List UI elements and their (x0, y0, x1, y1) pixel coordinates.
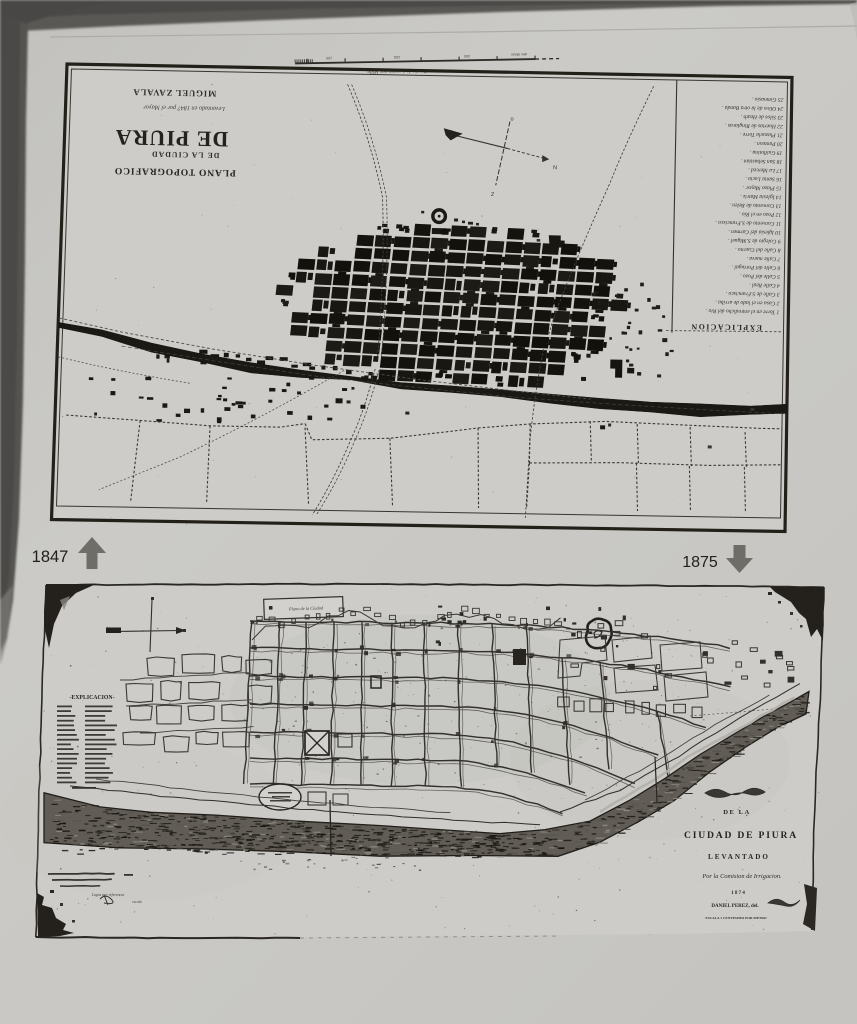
svg-text:11 Convento de S.Francisco .: 11 Convento de S.Francisco . (715, 219, 781, 226)
svg-text:25 Gimnasio .: 25 Gimnasio . (752, 96, 784, 103)
svg-text:13 Convento de Belen .: 13 Convento de Belen . (729, 202, 781, 209)
svg-text:5 Calle del Pozo .: 5 Calle del Pozo . (740, 273, 780, 280)
svg-text:CIUDAD DE PIURA: CIUDAD DE PIURA (684, 830, 798, 841)
svg-text:des Miras: des Miras (511, 52, 527, 56)
svg-text:23 Silos de Heath .: 23 Silos de Heath . (741, 113, 784, 120)
svg-text:16 Santa Lucia .: 16 Santa Lucia . (745, 175, 782, 182)
svg-text:2 Casa en el lado de arriba .: 2 Casa en el lado de arriba . (715, 299, 779, 306)
svg-text:10 Iglesia del Carmen .: 10 Iglesia del Carmen . (728, 228, 781, 235)
svg-text:N: N (553, 163, 557, 169)
svg-text:21 Plazuela Torre .: 21 Plazuela Torre . (740, 131, 783, 138)
svg-text:100: 100 (326, 56, 332, 60)
svg-text:14 Iglesia Matriz .: 14 Iglesia Matriz . (740, 193, 781, 200)
svg-text:1 8 7 4: 1 8 7 4 (731, 891, 745, 896)
svg-text:17 La Merced .: 17 La Merced . (748, 166, 782, 173)
svg-text:DE PIURA: DE PIURA (114, 125, 228, 152)
svg-text:1875: 1875 (682, 554, 718, 571)
svg-text:15 Plaza Mayor .: 15 Plaza Mayor . (743, 184, 782, 191)
svg-text:300: 300 (464, 54, 470, 58)
svg-text:Por la Comision de Irrigacion.: Por la Comision de Irrigacion. (701, 873, 782, 880)
svg-text:7 Calle nueva .: 7 Calle nueva . (746, 255, 780, 262)
svg-text:3 Calle de S.Francisco .: 3 Calle de S.Francisco . (726, 290, 781, 297)
svg-text:19 Guillotina .: 19 Guillotina . (750, 149, 783, 156)
svg-text:1847: 1847 (32, 548, 69, 566)
svg-text:MIGUEL ZAVALA: MIGUEL ZAVALA (133, 87, 217, 99)
svg-text:24 Olivo de la otra Banda .: 24 Olivo de la otra Banda . (722, 104, 783, 111)
svg-text:-EXPLICACION-: -EXPLICACION- (69, 695, 114, 701)
svg-text:9 Colegio de S.Miguel .: 9 Colegio de S.Miguel . (728, 237, 781, 244)
svg-text:escala: escala (132, 900, 142, 904)
svg-text:o: o (510, 116, 513, 122)
svg-text:PLANO TOPOGRAFICO: PLANO TOPOGRAFICO (114, 165, 236, 178)
svg-text:4 Calle Real .: 4 Calle Real . (749, 282, 780, 289)
svg-text:20 Panteon .: 20 Panteon . (754, 140, 783, 147)
svg-text:6 Calle del Portugal .: 6 Calle del Portugal . (732, 264, 781, 271)
svg-text:DE LA CIUDAD: DE LA CIUDAD (151, 150, 219, 160)
svg-text:22 Huertas de Ringlaras .: 22 Huertas de Ringlaras . (725, 122, 783, 129)
svg-text:18 San Sebastian .: 18 San Sebastian . (741, 158, 782, 165)
svg-text:8 Calle del Cuerno .: 8 Calle del Cuerno . (735, 246, 781, 253)
svg-text:ESCALA 1 CENTESIMO POR METRO: ESCALA 1 CENTESIMO POR METRO (705, 916, 767, 920)
svg-text:200: 200 (394, 55, 400, 59)
svg-text:12 Pozo en el Rio .: 12 Pozo en el Rio . (739, 211, 781, 218)
svg-text:LEVANTADO: LEVANTADO (708, 853, 770, 861)
svg-text:DANIEL PEREZ, del.: DANIEL PEREZ, del. (711, 904, 759, 909)
